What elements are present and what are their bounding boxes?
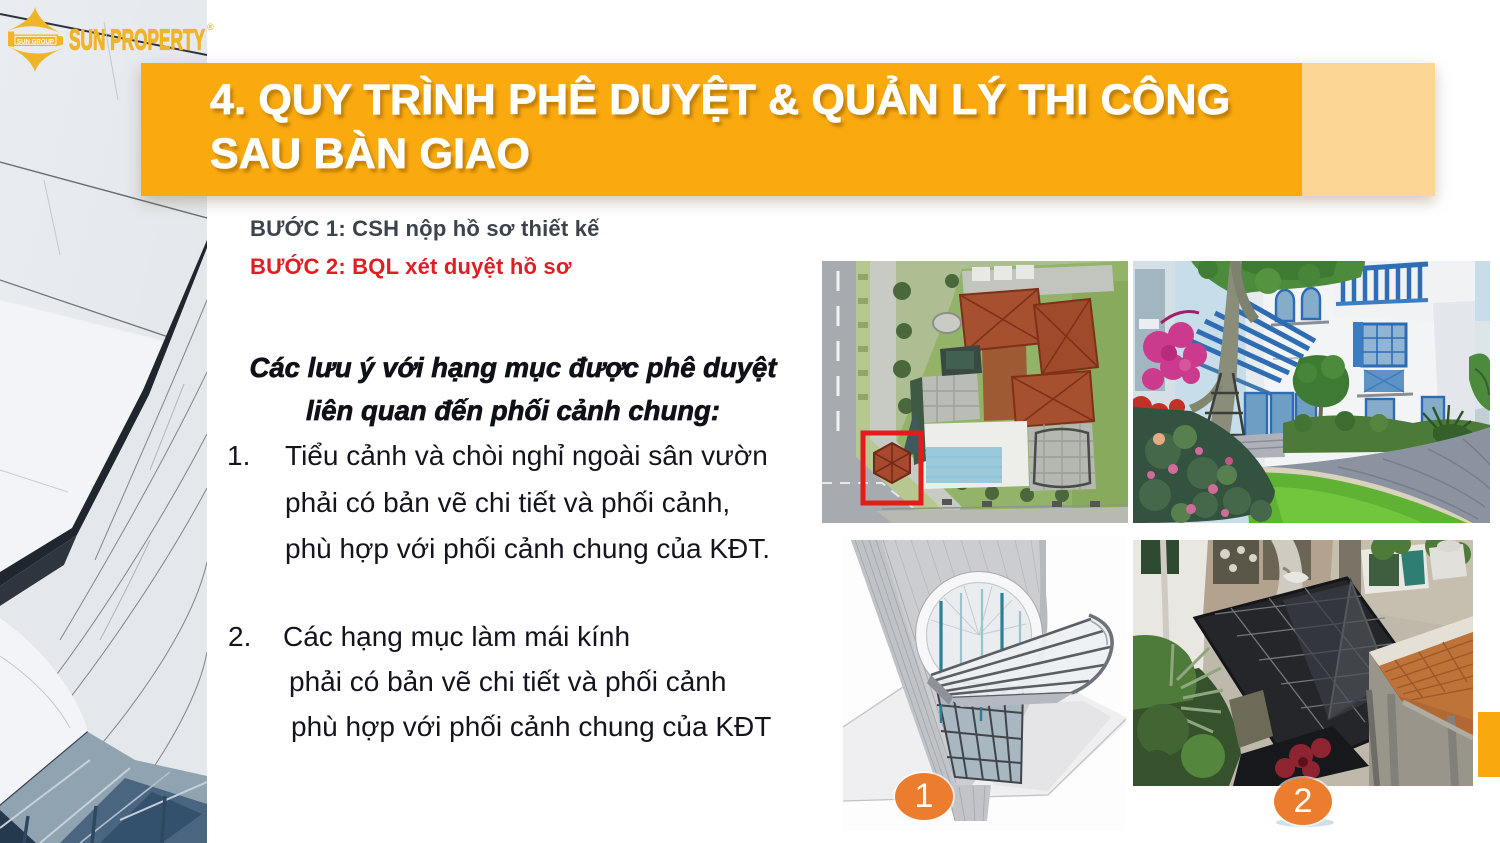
svg-text:SUN PROPERTY: SUN PROPERTY <box>69 25 205 57</box>
svg-text:SUN GROUP: SUN GROUP <box>17 38 55 45</box>
svg-text:®: ® <box>207 22 214 32</box>
